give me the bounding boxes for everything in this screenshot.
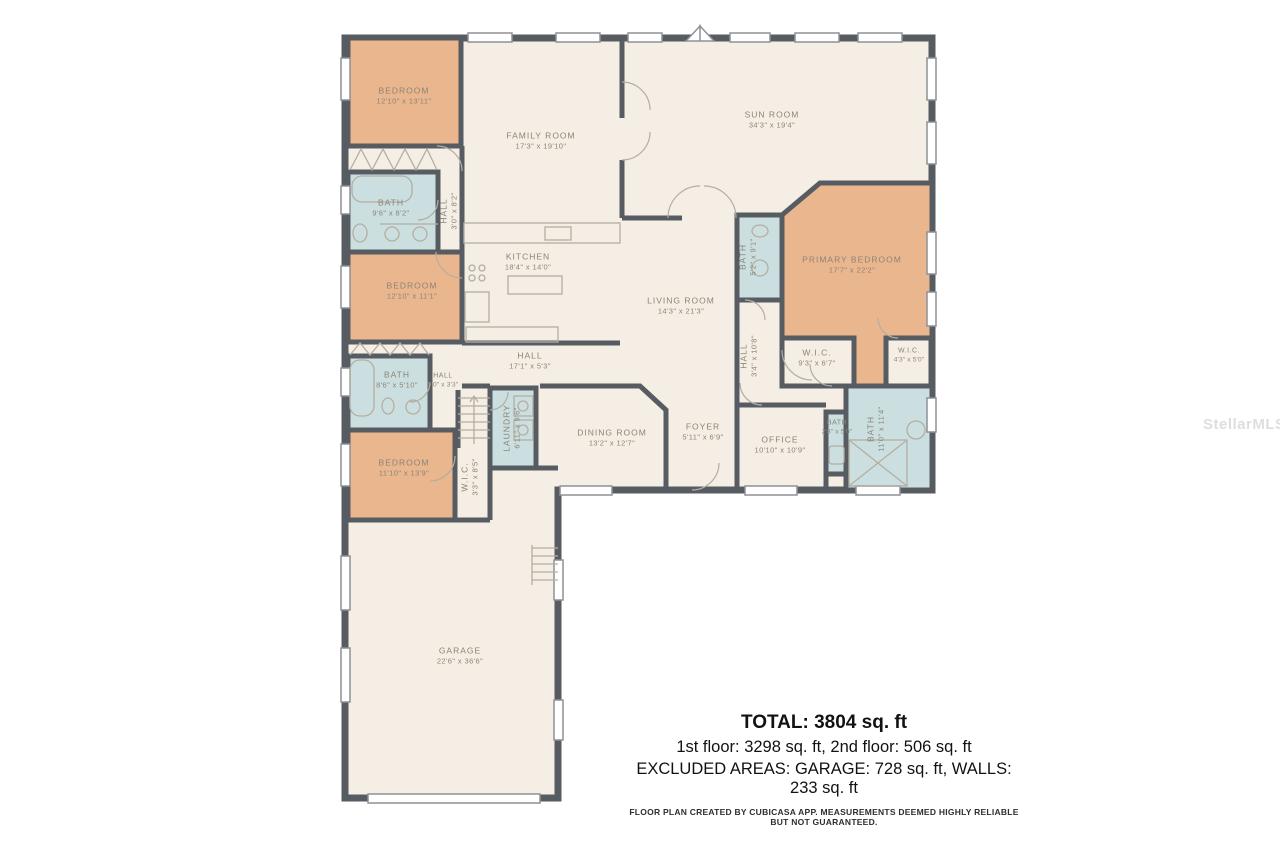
laundry-area [490, 388, 536, 468]
total-area: TOTAL: 3804 sq. ft [624, 712, 1024, 734]
bath-2-area [348, 356, 430, 430]
bedroom-2-area [348, 252, 462, 342]
entry-door-marks [686, 26, 714, 41]
bedroom-1-area [348, 38, 461, 146]
area-summary: TOTAL: 3804 sq. ft 1st floor: 3298 sq. f… [624, 712, 1024, 827]
disclaimer: FLOOR PLAN CREATED BY CUBICASA APP. MEAS… [624, 807, 1024, 827]
floor-areas: 1st floor: 3298 sq. ft, 2nd floor: 506 s… [624, 738, 1024, 757]
garage-door [368, 794, 540, 803]
floor-plan-page: BEDROOM 12'10" x 13'11" FAMILY ROOM 17'3… [0, 0, 1280, 853]
stellar-mls-watermark: StellarMLS [1203, 416, 1280, 433]
primary-hall-bath-area [737, 215, 782, 300]
excluded-areas: EXCLUDED AREAS: GARAGE: 728 sq. ft, WALL… [624, 760, 1024, 798]
bedroom-3-area [348, 430, 455, 520]
